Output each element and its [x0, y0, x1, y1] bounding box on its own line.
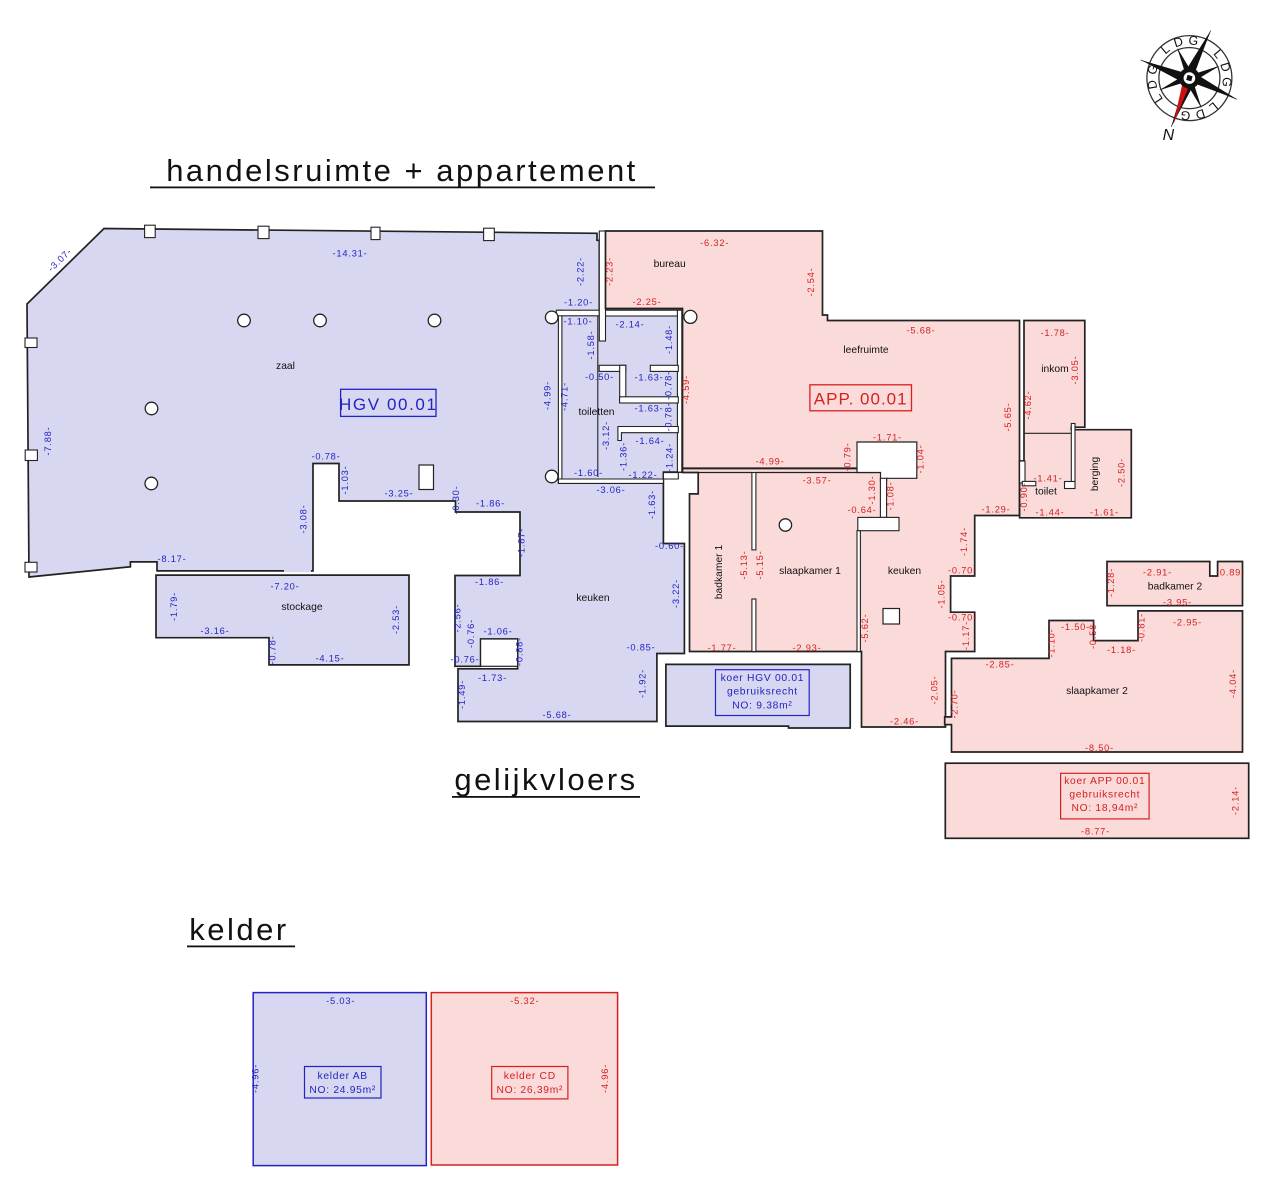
svg-text:-0.58-: -0.58- [1088, 620, 1098, 649]
svg-text:-4.99-: -4.99- [755, 457, 784, 467]
svg-text:-5.62-: -5.62- [860, 613, 870, 642]
svg-text:-2.91-: -2.91- [1143, 568, 1172, 578]
svg-text:keuken: keuken [888, 566, 921, 577]
svg-text:-3.05-: -3.05- [1070, 355, 1080, 384]
svg-text:-1.10-: -1.10- [1047, 628, 1057, 657]
svg-text:-4.99-: -4.99- [543, 381, 553, 410]
svg-text:-1.50-: -1.50- [1061, 622, 1090, 632]
svg-text:-1.74-: -1.74- [959, 527, 969, 556]
svg-text:-1.22-: -1.22- [628, 470, 657, 480]
svg-text:leefruimte: leefruimte [843, 345, 888, 356]
svg-text:berging: berging [1090, 457, 1101, 492]
svg-text:-1.58-: -1.58- [586, 330, 596, 359]
svg-text:-8.77-: -8.77- [1081, 827, 1110, 837]
svg-text:bureau: bureau [654, 259, 686, 270]
svg-text:-1.64-: -1.64- [635, 436, 664, 446]
svg-text:-1.63-: -1.63- [634, 373, 663, 383]
svg-text:-0.64-: -0.64- [847, 505, 876, 515]
svg-text:-1.28-: -1.28- [1106, 568, 1116, 597]
svg-text:-3.95-: -3.95- [1163, 598, 1192, 608]
svg-text:-3.22-: -3.22- [671, 579, 681, 608]
svg-text:-0.85-: -0.85- [626, 643, 655, 653]
svg-text:-2.22-: -2.22- [576, 257, 586, 286]
svg-text:-3.16-: -3.16- [200, 626, 229, 636]
svg-text:-0.76-: -0.76- [466, 619, 476, 648]
svg-text:-1.36-: -1.36- [619, 442, 629, 471]
svg-text:-1.48-: -1.48- [664, 325, 674, 354]
svg-text:-2.50-: -2.50- [1117, 458, 1127, 487]
svg-text:-1.04-: -1.04- [916, 444, 926, 473]
svg-text:-0.89-: -0.89- [1216, 568, 1245, 578]
svg-text:-8.50-: -8.50- [1085, 743, 1114, 753]
svg-text:slaapkamer 2: slaapkamer 2 [1066, 686, 1128, 697]
svg-text:kelder CD: kelder CD [504, 1071, 556, 1082]
svg-text:-1.73-: -1.73- [478, 673, 507, 683]
svg-text:-4.62-: -4.62- [1023, 390, 1033, 419]
svg-text:-1.79-: -1.79- [169, 592, 179, 621]
svg-text:-14.31-: -14.31- [332, 249, 367, 259]
svg-text:-1.44-: -1.44- [1035, 508, 1064, 518]
svg-text:zaal: zaal [276, 361, 295, 372]
svg-text:-2.25-: -2.25- [632, 297, 661, 307]
svg-text:slaapkamer 1: slaapkamer 1 [779, 566, 841, 577]
svg-text:-0.88-: -0.88- [515, 637, 525, 666]
svg-text:koer HGV 00.01: koer HGV 00.01 [721, 673, 805, 684]
svg-text:-1.24-: -1.24- [665, 443, 675, 472]
svg-text:NO: 18,94m²: NO: 18,94m² [1071, 803, 1138, 814]
svg-text:-4.15-: -4.15- [315, 654, 344, 664]
svg-text:stockage: stockage [281, 602, 322, 613]
svg-text:-3.06-: -3.06- [596, 485, 625, 495]
svg-text:-0.50-: -0.50- [585, 372, 614, 382]
svg-text:-1.63-: -1.63- [647, 490, 657, 519]
svg-text:-2.05-: -2.05- [930, 675, 940, 704]
svg-text:-2.23-: -2.23- [605, 257, 615, 286]
svg-text:gebruiksrecht: gebruiksrecht [727, 687, 798, 698]
svg-text:-1.49-: -1.49- [457, 680, 467, 709]
svg-text:-2.46-: -2.46- [890, 717, 919, 727]
svg-text:-5.65-: -5.65- [1003, 402, 1013, 431]
svg-text:APP. 00.01: APP. 00.01 [814, 390, 908, 409]
svg-text:-2.85-: -2.85- [985, 660, 1014, 670]
svg-text:-1.86-: -1.86- [476, 499, 505, 509]
svg-text:-5.03-: -5.03- [326, 996, 355, 1006]
svg-text:kelder: kelder [189, 912, 288, 947]
svg-text:-0.81-: -0.81- [1137, 613, 1147, 642]
svg-text:-1.20-: -1.20- [564, 298, 593, 308]
svg-text:-4.04-: -4.04- [1228, 669, 1238, 698]
svg-text:-0.79-: -0.79- [843, 442, 853, 471]
svg-text:-0.78-: -0.78- [664, 371, 674, 400]
svg-text:-0.70-: -0.70- [948, 566, 977, 576]
svg-text:-2.93-: -2.93- [792, 643, 821, 653]
svg-text:-4.71-: -4.71- [560, 382, 570, 411]
svg-text:-0.78-: -0.78- [664, 402, 674, 431]
svg-text:gelijkvloers: gelijkvloers [454, 762, 637, 797]
svg-text:inkom: inkom [1041, 364, 1068, 375]
svg-text:-1.60-: -1.60- [574, 468, 603, 478]
svg-text:-5.68-: -5.68- [906, 326, 935, 336]
svg-text:-5.68-: -5.68- [542, 710, 571, 720]
svg-text:-1.92-: -1.92- [638, 669, 648, 698]
svg-text:-7.88-: -7.88- [43, 426, 53, 455]
svg-text:keuken: keuken [576, 593, 609, 604]
svg-text:NO: 9.38m²: NO: 9.38m² [732, 701, 792, 712]
svg-text:G: G [1188, 33, 1199, 48]
svg-text:gebruiksrecht: gebruiksrecht [1069, 790, 1140, 801]
svg-text:NO: 24.95m²: NO: 24.95m² [309, 1085, 376, 1096]
svg-text:-4.96-: -4.96- [251, 1064, 261, 1093]
svg-text:-3.08-: -3.08- [299, 504, 309, 533]
svg-text:-1.06-: -1.06- [483, 627, 512, 637]
svg-text:-1.08-: -1.08- [886, 481, 896, 510]
svg-text:toilet: toilet [1035, 487, 1057, 498]
svg-text:-4.59-: -4.59- [681, 375, 691, 404]
svg-text:-2.70-: -2.70- [950, 689, 960, 718]
svg-text:-1.78-: -1.78- [1040, 328, 1069, 338]
svg-text:-1.05-: -1.05- [937, 579, 947, 608]
svg-text:-1.63-: -1.63- [634, 404, 663, 414]
svg-text:-1.10-: -1.10- [563, 317, 592, 327]
svg-text:badkamer 2: badkamer 2 [1148, 582, 1203, 593]
svg-text:N: N [1163, 127, 1175, 144]
svg-text:-2.53-: -2.53- [391, 605, 401, 634]
svg-text:-2.95-: -2.95- [1173, 618, 1202, 628]
svg-text:-8.17-: -8.17- [157, 554, 186, 564]
svg-text:NO: 26,39m²: NO: 26,39m² [496, 1085, 563, 1096]
svg-text:-0.76-: -0.76- [450, 655, 479, 665]
svg-text:-0.78-: -0.78- [311, 452, 340, 462]
svg-text:-1.18-: -1.18- [1107, 645, 1136, 655]
svg-text:-1.61-: -1.61- [1090, 508, 1119, 518]
svg-text:-0.78-: -0.78- [268, 635, 278, 664]
svg-text:-0.90-: -0.90- [1019, 482, 1029, 511]
svg-text:-2.14-: -2.14- [1231, 786, 1241, 815]
svg-text:-1.17-: -1.17- [961, 621, 971, 650]
svg-text:HGV 00.01: HGV 00.01 [339, 395, 438, 414]
svg-text:-5.15-: -5.15- [755, 550, 765, 579]
svg-text:-3.12-: -3.12- [601, 421, 611, 450]
svg-text:toiletten: toiletten [578, 407, 614, 418]
svg-text:-5.13-: -5.13- [739, 550, 749, 579]
svg-text:G: G [1180, 108, 1191, 123]
svg-text:badkamer 1: badkamer 1 [714, 545, 725, 600]
svg-text:G: G [1219, 76, 1234, 87]
svg-text:-3.25-: -3.25- [384, 489, 413, 499]
svg-text:-2.14-: -2.14- [615, 320, 644, 330]
svg-text:kelder AB: kelder AB [318, 1071, 368, 1082]
svg-text:-1.29-: -1.29- [981, 505, 1010, 515]
svg-text:handelsruimte + appartement: handelsruimte + appartement [166, 153, 638, 188]
svg-text:-1.77-: -1.77- [707, 643, 736, 653]
svg-text:-6.32-: -6.32- [700, 238, 729, 248]
svg-text:-2.56-: -2.56- [453, 603, 463, 632]
svg-text:koer APP 00.01: koer APP 00.01 [1064, 776, 1145, 787]
svg-text:-1.41-: -1.41- [1033, 474, 1062, 484]
svg-text:-4.96-: -4.96- [600, 1064, 610, 1093]
svg-text:-5.32-: -5.32- [510, 996, 539, 1006]
svg-text:-1.03-: -1.03- [340, 465, 350, 494]
svg-text:-0.60-: -0.60- [655, 541, 684, 551]
svg-text:-1.87-: -1.87- [517, 528, 527, 557]
svg-text:-1.30-: -1.30- [867, 475, 877, 504]
svg-text:-2.54-: -2.54- [806, 267, 816, 296]
svg-text:-0.30-: -0.30- [451, 485, 461, 514]
svg-text:-1.86-: -1.86- [475, 577, 504, 587]
svg-text:-1.71-: -1.71- [873, 433, 902, 443]
svg-text:-3.57-: -3.57- [802, 476, 831, 486]
svg-text:-7.20-: -7.20- [270, 582, 299, 592]
